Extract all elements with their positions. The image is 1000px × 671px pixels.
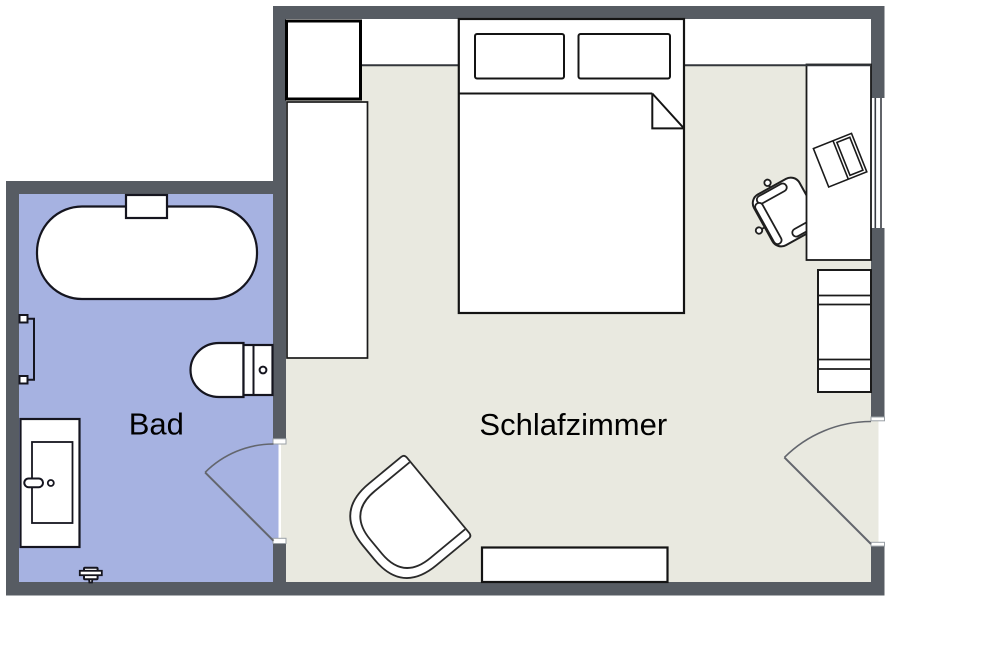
- svg-text:Schlafzimmer: Schlafzimmer: [479, 407, 667, 442]
- svg-text:Bad: Bad: [129, 407, 184, 442]
